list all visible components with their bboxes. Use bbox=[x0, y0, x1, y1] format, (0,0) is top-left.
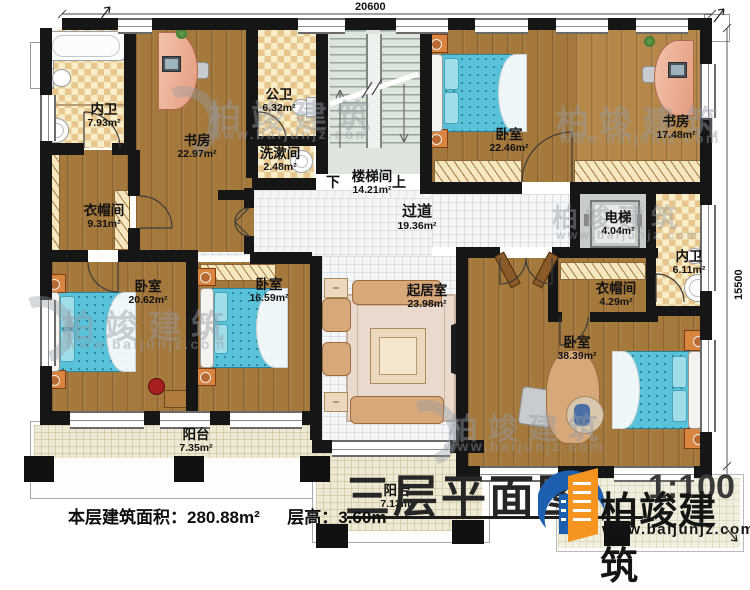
wall bbox=[572, 182, 712, 194]
watermark-url: www.baijunjz.com bbox=[444, 438, 605, 454]
stats-height-value: 3.60m bbox=[338, 508, 386, 527]
wall bbox=[40, 143, 84, 155]
room-label-study-left: 书房22.97m² bbox=[177, 134, 216, 160]
column bbox=[24, 456, 54, 482]
window bbox=[700, 205, 716, 291]
brand-url: www.baijunjz.com bbox=[602, 521, 750, 538]
coffee-table bbox=[370, 328, 426, 384]
room-label-master-bedroom: 卧室38.39m² bbox=[557, 336, 596, 362]
corner-table bbox=[324, 392, 348, 412]
room-label-bedroom1: 卧室20.62m² bbox=[128, 280, 167, 306]
toilet-bowl bbox=[52, 69, 71, 87]
armchair bbox=[322, 342, 351, 376]
pillow bbox=[672, 390, 687, 422]
wall bbox=[40, 250, 88, 262]
column bbox=[300, 456, 330, 482]
pillow bbox=[444, 58, 459, 90]
room-label-washroom: 洗漱间2.48m² bbox=[260, 147, 301, 173]
stool bbox=[148, 378, 165, 395]
balcony-left-floor bbox=[34, 425, 316, 458]
wall bbox=[128, 150, 140, 196]
pillow bbox=[444, 92, 459, 124]
watermark-url: www.baijunjz.com bbox=[560, 130, 721, 146]
room-label-stairwell: 楼梯间14.21m² bbox=[352, 170, 393, 196]
window bbox=[230, 411, 302, 429]
dimension-right: 15500 bbox=[733, 266, 745, 303]
stats-area-value: 280.88m² bbox=[187, 508, 260, 527]
bed-sheet bbox=[498, 54, 527, 132]
wall bbox=[62, 18, 712, 30]
watermark-url: www.baijunjz.com bbox=[210, 126, 371, 142]
room-label-bath-topleft: 内卫7.93m² bbox=[87, 103, 120, 129]
room-label-living: 起居室23.98m² bbox=[407, 284, 448, 310]
wall bbox=[420, 28, 432, 194]
window bbox=[556, 18, 608, 34]
wall bbox=[252, 178, 316, 190]
pillow bbox=[672, 356, 687, 388]
watermark-url: www.baijunjz.com bbox=[66, 336, 227, 352]
floor-corridor-c bbox=[432, 194, 570, 247]
stair-treads-right bbox=[380, 30, 420, 148]
computer-monitor bbox=[162, 56, 181, 72]
room-label-bath-right: 内卫6.11m² bbox=[673, 250, 706, 276]
dimension-top: 20600 bbox=[352, 1, 389, 13]
computer-monitor bbox=[668, 62, 687, 78]
stair-down-label: 下 bbox=[326, 172, 340, 192]
window bbox=[118, 18, 152, 34]
window bbox=[298, 18, 345, 34]
room-label-public-bath: 公卫6.32m² bbox=[262, 88, 295, 114]
window bbox=[70, 411, 144, 429]
plant bbox=[644, 36, 655, 47]
bathtub bbox=[46, 31, 126, 61]
wall bbox=[244, 188, 254, 208]
closet-suite-b bbox=[574, 160, 712, 183]
floor-stats: 本层建筑面积：280.88m² 层高：3.60m bbox=[68, 503, 386, 528]
corner-table bbox=[324, 278, 348, 298]
room-label-cloak-left: 衣帽间9.31m² bbox=[84, 204, 125, 230]
window bbox=[475, 18, 528, 34]
closet-suite-a bbox=[434, 160, 522, 183]
floor-plan: 20600 15500 内卫7.93m² 书房22.97m² 公卫6.32m² … bbox=[0, 0, 750, 556]
window bbox=[700, 340, 716, 432]
stair-up-label: 上 bbox=[392, 172, 406, 192]
stats-area-label: 本层建筑面积： bbox=[68, 508, 187, 527]
room-label-corridor: 过道19.36m² bbox=[397, 204, 436, 232]
window bbox=[636, 18, 688, 34]
room-label-cloak-right: 衣帽间4.29m² bbox=[596, 282, 637, 308]
window bbox=[396, 18, 448, 34]
room-label-elevator: 电梯4.04m² bbox=[601, 211, 634, 237]
stats-height-label: 层高： bbox=[287, 508, 338, 527]
wall bbox=[590, 312, 658, 322]
wall bbox=[310, 256, 322, 440]
room-label-bedroom2: 卧室16.59m² bbox=[249, 278, 288, 304]
wall bbox=[432, 182, 522, 194]
wall bbox=[548, 312, 562, 322]
wall bbox=[124, 28, 136, 143]
closet-cloak-right bbox=[560, 262, 646, 280]
room-label-study-right: 书房17.48m² bbox=[656, 115, 695, 141]
armchair bbox=[322, 298, 351, 332]
room-label-bedroom-top: 卧室22.46m² bbox=[489, 128, 528, 154]
wall bbox=[250, 252, 312, 264]
window bbox=[40, 95, 56, 141]
room-label-balcony-left: 阳台7.35m² bbox=[179, 428, 212, 454]
column bbox=[174, 456, 204, 482]
